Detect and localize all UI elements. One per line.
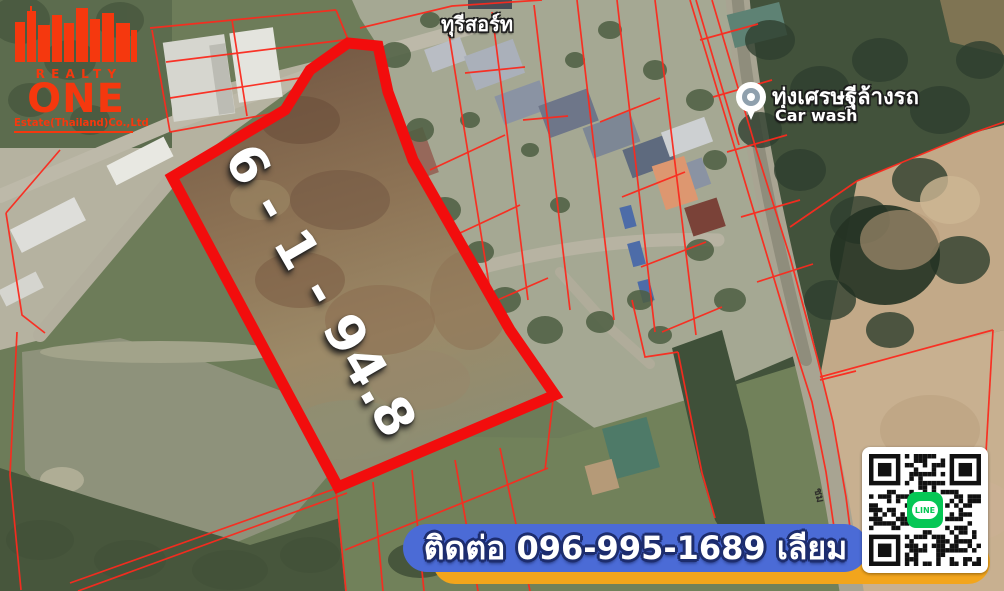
- resort-place-label: ทุรีสอร์ท: [441, 8, 513, 40]
- contact-banner: ติดต่อ 096-995-1689 เลียม: [403, 524, 868, 572]
- logo-brand-sub: Estate(Thailand)Co.,Ltd: [14, 117, 133, 133]
- contact-phone-text: ติดต่อ 096-995-1689 เลียม: [424, 523, 847, 574]
- line-qr-code: LINE: [862, 447, 988, 573]
- realty-one-logo: REALTY ONE Estate(Thailand)Co.,Ltd: [14, 6, 138, 133]
- carwash-label-english: Car wash: [775, 106, 858, 125]
- carwash-poi-pin[interactable]: [733, 80, 769, 122]
- map-pin-icon: [733, 80, 769, 122]
- line-app-label: LINE: [912, 501, 938, 519]
- listing-ad-image: REALTY ONE Estate(Thailand)Co.,Ltd ทุรีส…: [0, 0, 1004, 591]
- logo-skyline-icon: [15, 6, 137, 62]
- line-app-icon: LINE: [907, 492, 943, 528]
- logo-brand-main: ONE: [14, 81, 138, 117]
